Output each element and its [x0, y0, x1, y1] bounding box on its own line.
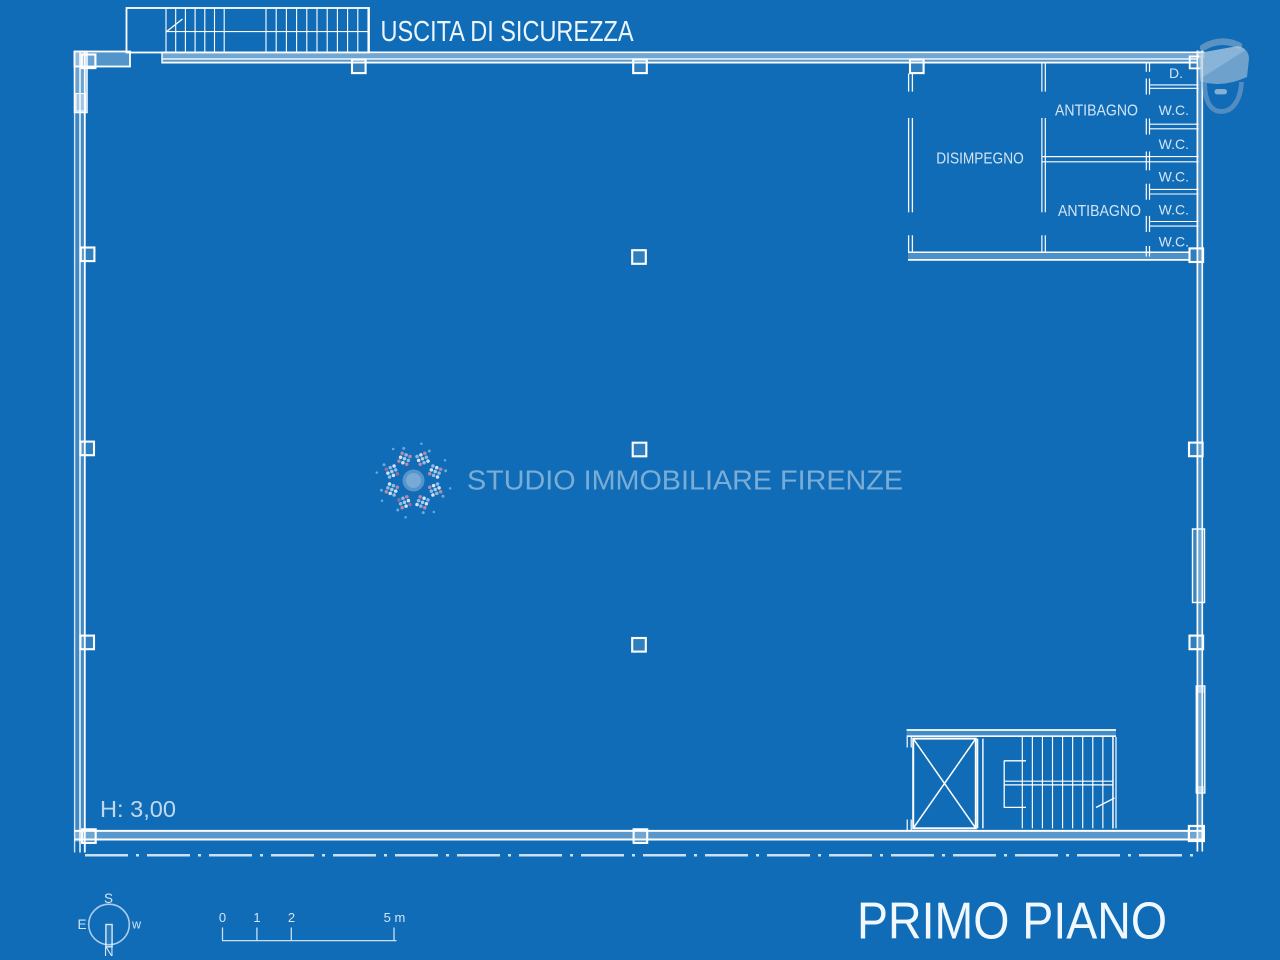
svg-text:1: 1	[253, 910, 260, 925]
svg-text:DISIMPEGNO: DISIMPEGNO	[936, 151, 1024, 168]
svg-text:N: N	[104, 944, 114, 959]
svg-text:2: 2	[288, 910, 295, 925]
svg-text:W.C.: W.C.	[1159, 102, 1189, 118]
svg-text:w: w	[131, 918, 142, 932]
svg-text:W.C.: W.C.	[1159, 169, 1189, 185]
svg-text:USCITA DI SICUREZZA: USCITA DI SICUREZZA	[381, 16, 634, 48]
svg-text:D.: D.	[1169, 65, 1183, 81]
svg-text:ANTIBAGNO: ANTIBAGNO	[1055, 103, 1138, 120]
svg-text:W.C.: W.C.	[1159, 234, 1189, 250]
svg-text:STUDIO IMMOBILIARE FIRENZE: STUDIO IMMOBILIARE FIRENZE	[467, 465, 903, 496]
svg-text:0: 0	[219, 910, 226, 925]
svg-text:5 m: 5 m	[384, 910, 406, 925]
svg-text:W.C.: W.C.	[1159, 136, 1189, 152]
svg-text:PRIMO PIANO: PRIMO PIANO	[857, 892, 1167, 950]
svg-text:H: 3,00: H: 3,00	[100, 796, 176, 822]
svg-text:E: E	[77, 917, 86, 932]
svg-text:W.C.: W.C.	[1159, 202, 1189, 218]
svg-text:S: S	[104, 891, 113, 906]
svg-text:ANTIBAGNO: ANTIBAGNO	[1058, 203, 1141, 220]
